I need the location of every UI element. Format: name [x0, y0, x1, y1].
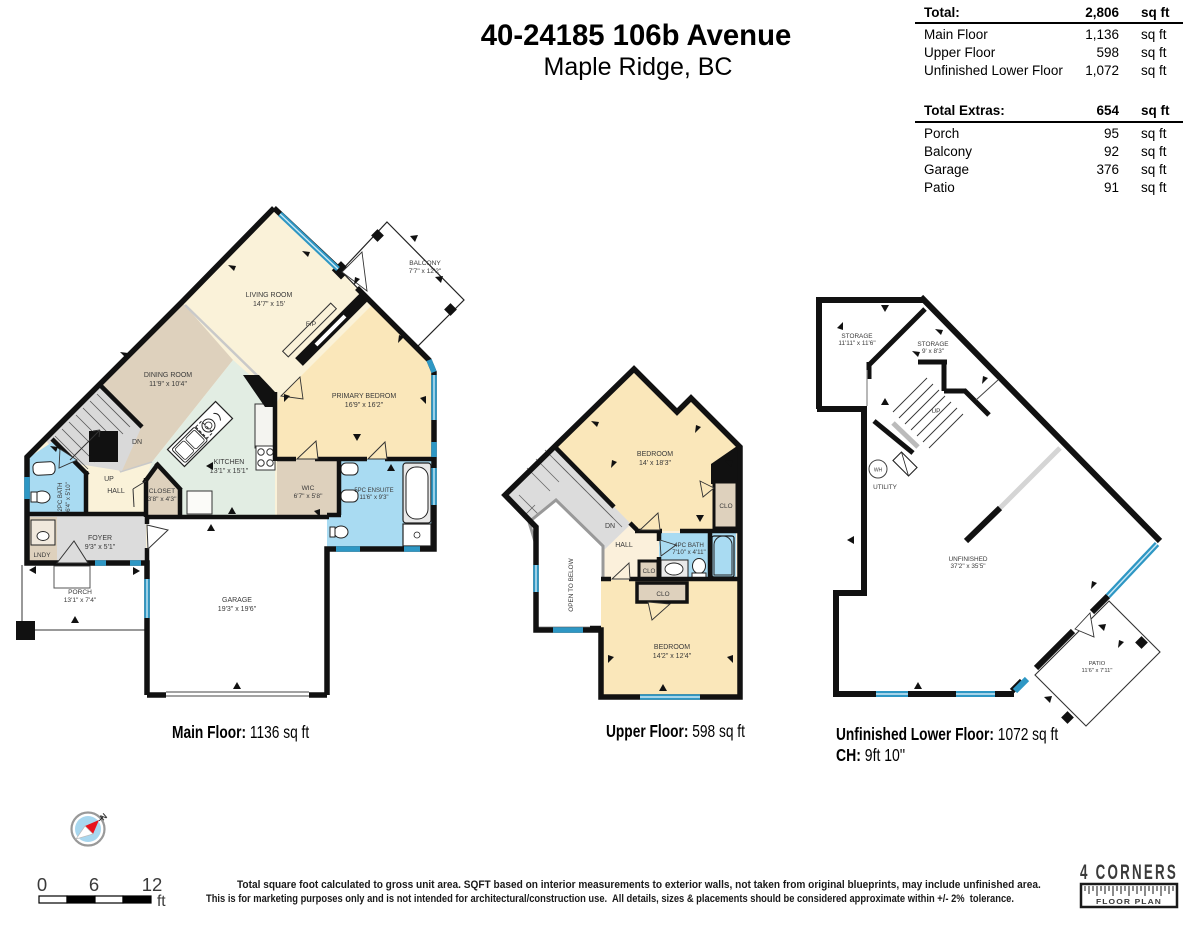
svg-text:11'6" x 9'3": 11'6" x 9'3"	[359, 495, 388, 501]
svg-text:5PC ENSUITE: 5PC ENSUITE	[354, 488, 393, 494]
svg-text:CLO: CLO	[719, 503, 732, 510]
svg-text:4PC BATH: 4PC BATH	[674, 542, 704, 549]
svg-text:3'8" x 4'3": 3'8" x 4'3"	[148, 496, 177, 503]
svg-text:13'1" x 7'4": 13'1" x 7'4"	[64, 597, 97, 604]
svg-text:11'6" x 7'11": 11'6" x 7'11"	[1082, 668, 1113, 674]
svg-text:14' x 18'3": 14' x 18'3"	[639, 460, 672, 467]
svg-text:13'1" x 15'1": 13'1" x 15'1"	[210, 468, 249, 475]
svg-text:9' x 8'3": 9' x 8'3"	[922, 348, 944, 355]
svg-text:HALL: HALL	[107, 488, 125, 495]
svg-text:HALL: HALL	[615, 542, 633, 549]
svg-text:4 CORNERS: 4 CORNERS	[1080, 861, 1178, 884]
svg-text:11'11" x 11'6": 11'11" x 11'6"	[838, 340, 875, 347]
svg-text:STORAGE: STORAGE	[841, 333, 872, 340]
svg-text:F/P: F/P	[306, 321, 317, 328]
svg-text:LIVING ROOM: LIVING ROOM	[246, 292, 293, 299]
svg-text:PATIO: PATIO	[1089, 661, 1106, 667]
svg-text:CLOSET: CLOSET	[149, 488, 175, 495]
svg-text:WH: WH	[874, 468, 883, 474]
svg-text:CLO: CLO	[656, 591, 669, 598]
svg-text:ft: ft	[157, 893, 166, 910]
svg-text:6'4" x 5'10": 6'4" x 5'10"	[66, 482, 72, 512]
svg-text:FLOOR PLAN: FLOOR PLAN	[1096, 897, 1162, 906]
svg-text:2PC BATH: 2PC BATH	[58, 483, 64, 512]
svg-text:BALCONY: BALCONY	[409, 260, 441, 267]
svg-text:OPEN TO BELOW: OPEN TO BELOW	[568, 557, 575, 611]
svg-text:UNFINISHED: UNFINISHED	[948, 556, 987, 563]
svg-text:CLO: CLO	[643, 568, 656, 575]
svg-text:BEDROOM: BEDROOM	[654, 644, 690, 651]
svg-text:16'9" x 16'2": 16'9" x 16'2"	[345, 402, 384, 409]
svg-text:7'10" x 4'11": 7'10" x 4'11"	[672, 549, 705, 556]
svg-text:14'7" x 15': 14'7" x 15'	[253, 301, 285, 308]
svg-text:DINING ROOM: DINING ROOM	[144, 372, 192, 379]
svg-text:BEDROOM: BEDROOM	[637, 451, 673, 458]
svg-text:GARAGE: GARAGE	[222, 597, 252, 604]
svg-text:DN: DN	[605, 523, 615, 530]
svg-text:19'3" x 19'6": 19'3" x 19'6"	[218, 606, 257, 613]
svg-text:11'9" x 10'4": 11'9" x 10'4"	[149, 381, 187, 388]
svg-text:0: 0	[37, 874, 47, 895]
svg-text:LNDY: LNDY	[33, 552, 51, 559]
svg-text:STORAGE: STORAGE	[917, 341, 948, 348]
svg-text:WIC: WIC	[302, 485, 315, 492]
svg-text:FOYER: FOYER	[88, 535, 112, 542]
svg-text:9'3" x 5'1": 9'3" x 5'1"	[85, 544, 116, 551]
svg-text:14'2" x 12'4": 14'2" x 12'4"	[653, 653, 692, 660]
svg-text:12: 12	[142, 874, 163, 895]
svg-text:UTILITY: UTILITY	[873, 484, 898, 491]
svg-text:7'7" x 12'2": 7'7" x 12'2"	[409, 268, 442, 275]
svg-text:DN: DN	[132, 439, 142, 446]
svg-text:6: 6	[89, 874, 99, 895]
svg-text:UP: UP	[932, 408, 941, 415]
svg-text:37'2" x 35'5": 37'2" x 35'5"	[950, 563, 985, 570]
svg-text:PRIMARY BEDROM: PRIMARY BEDROM	[332, 393, 396, 400]
svg-text:KITCHEN: KITCHEN	[214, 459, 245, 466]
svg-text:PORCH: PORCH	[68, 589, 92, 596]
svg-text:6'7" x 5'8": 6'7" x 5'8"	[294, 493, 323, 500]
svg-text:UP: UP	[104, 476, 114, 483]
